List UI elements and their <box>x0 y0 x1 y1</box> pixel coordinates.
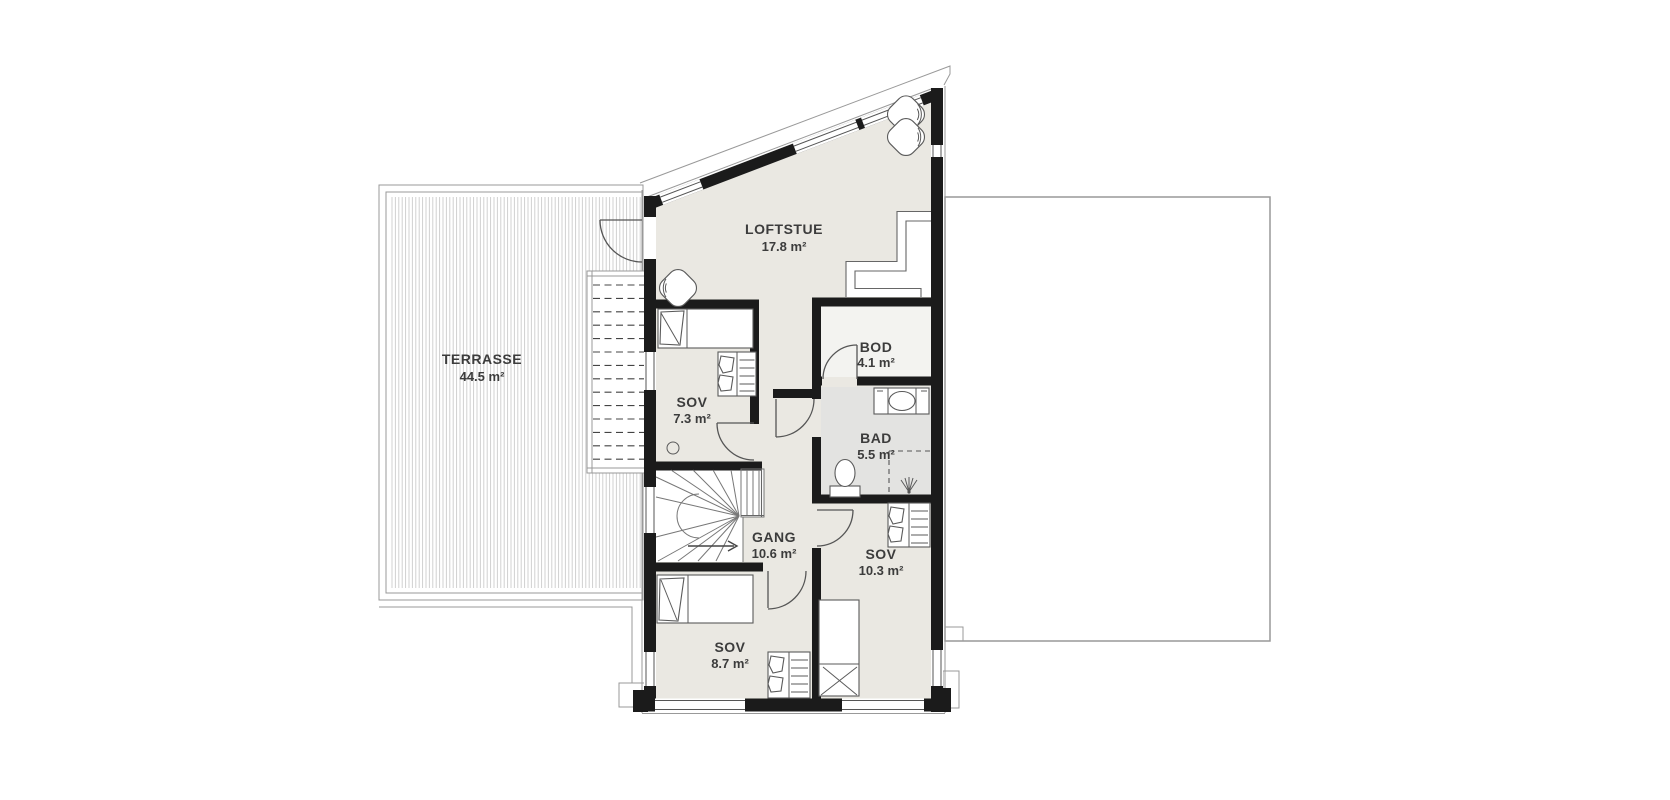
sink-vanity-icon <box>874 388 929 414</box>
sw-corner <box>633 690 648 712</box>
room-area-bad: 5.5 m² <box>857 447 895 462</box>
room-area-sov-nw: 7.3 m² <box>673 411 711 426</box>
room-label-sov-sw: SOV <box>714 639 745 655</box>
floor-plan-drawing: TERRASSE 44.5 m² LOFTSTUE 17.8 m² SOV 7.… <box>0 0 1670 800</box>
window-mullion <box>857 123 863 125</box>
wardrobe-icon <box>768 652 810 698</box>
wardrobe-icon <box>888 503 930 547</box>
bed-icon <box>657 575 753 623</box>
stair-floor <box>656 470 743 562</box>
room-label-gang: GANG <box>752 529 796 545</box>
room-label-sov-nw: SOV <box>676 394 707 410</box>
room-label-loftstue: LOFTSTUE <box>745 221 823 237</box>
wardrobe-icon <box>718 352 756 396</box>
lower-roof-edge-left <box>379 607 632 688</box>
room-area-bod: 4.1 m² <box>857 355 895 370</box>
room-area-gang: 10.6 m² <box>752 546 797 561</box>
room-label-bod: BOD <box>860 339 893 355</box>
room-label-sov-se: SOV <box>865 546 896 562</box>
room-area-loftstue: 17.8 m² <box>762 239 807 254</box>
se-corner <box>931 688 951 712</box>
room-label-bad: BAD <box>860 430 892 446</box>
bed-icon <box>819 600 859 696</box>
bed-icon <box>658 309 753 348</box>
outdoor-stair-icon <box>587 271 649 473</box>
room-label-terrasse: TERRASSE <box>442 351 522 367</box>
adjacent-roof-outline <box>945 197 1270 641</box>
room-area-sov-sw: 8.7 m² <box>711 656 749 671</box>
floor-plan-page: TERRASSE 44.5 m² LOFTSTUE 17.8 m² SOV 7.… <box>0 0 1670 800</box>
room-area-sov-se: 10.3 m² <box>859 563 904 578</box>
room-area-terrasse: 44.5 m² <box>460 369 505 384</box>
